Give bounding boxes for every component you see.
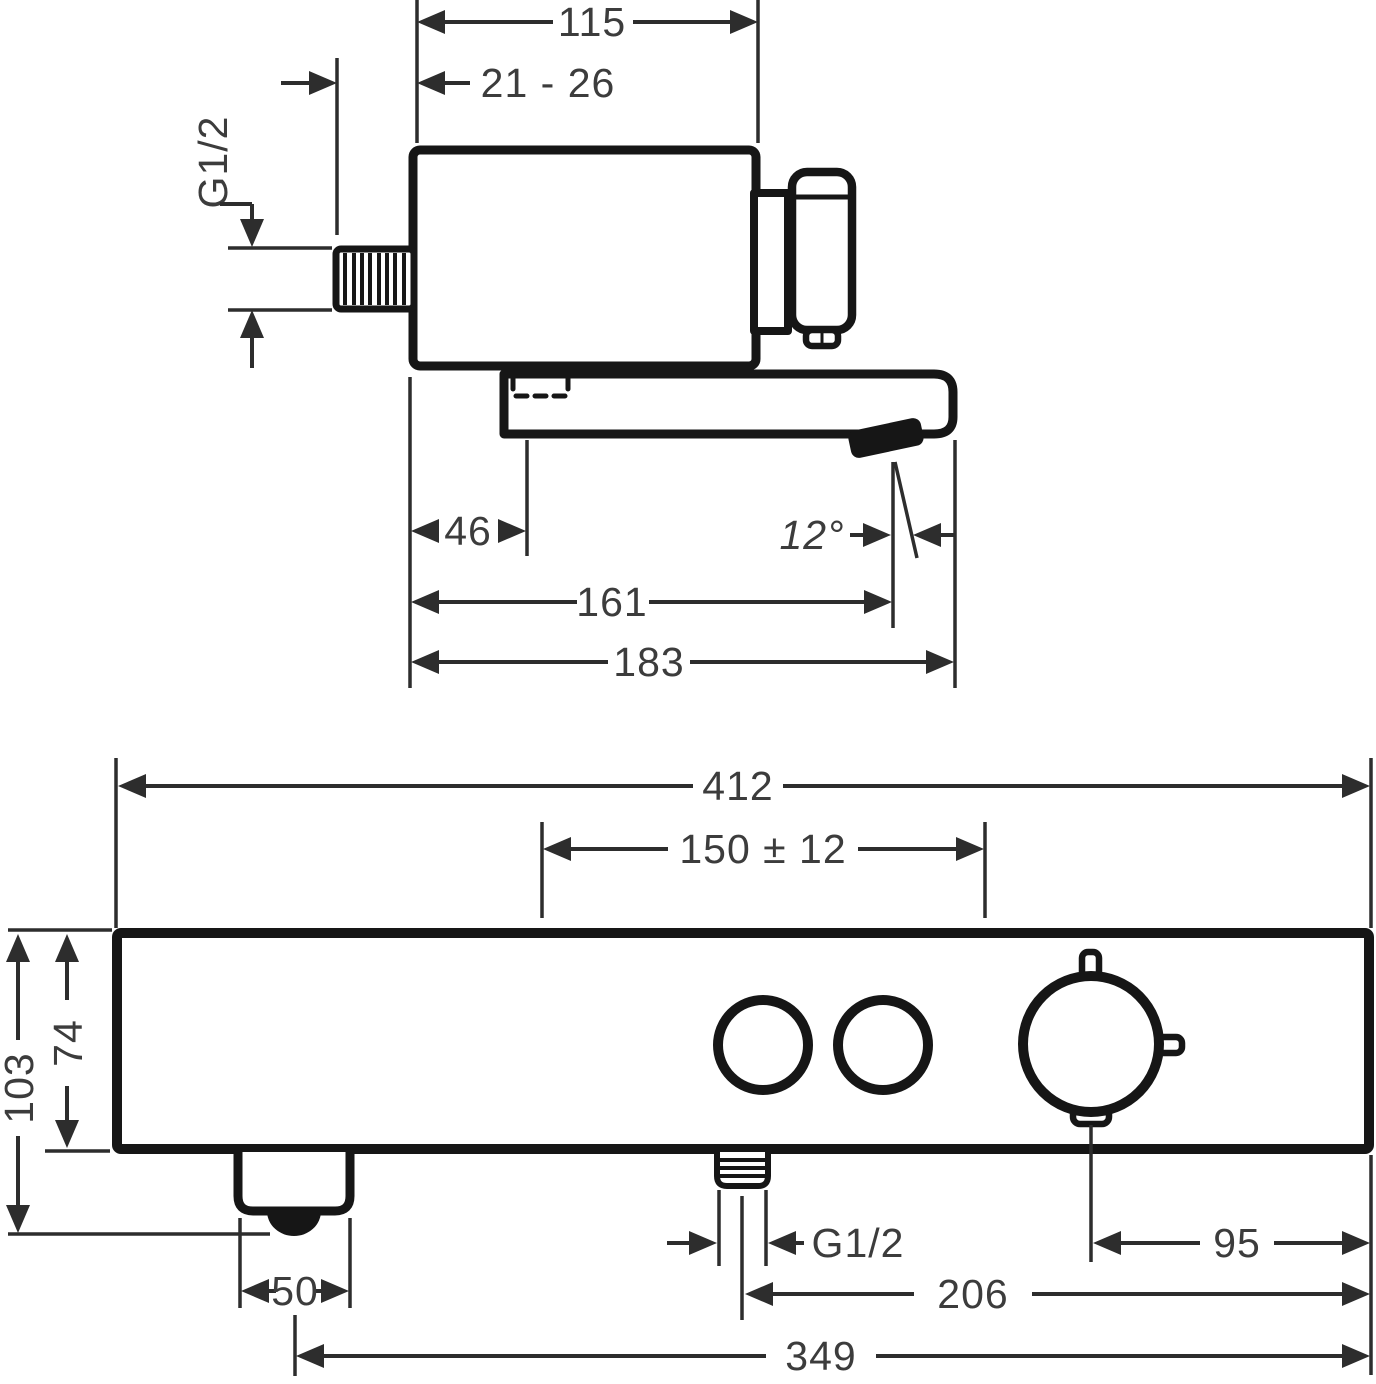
front-view-faucet-outline [117, 933, 1369, 1236]
dim-knob-to-edge-label: 95 [1213, 1220, 1261, 1266]
side-handle-collar [754, 193, 788, 331]
dim-height-body-label: 74 [45, 1019, 91, 1067]
front-select-button-1 [718, 1000, 808, 1090]
dim-height-body: 74 [45, 934, 110, 1151]
technical-drawing-canvas: 115 21 - 26 G1/2 46 [0, 0, 1376, 1384]
dim-total-width-label: 412 [702, 763, 773, 809]
dim-reach-total-label: 183 [613, 639, 684, 685]
front-spout-outline [238, 1152, 350, 1211]
dim-spray-angle-label: 12° [779, 512, 844, 558]
dim-connection-centers: 150 ± 12 [542, 822, 985, 918]
dim-inlet-to-edge-label: 206 [937, 1271, 1008, 1317]
dim-body-width-label: 115 [558, 0, 626, 45]
dim-spout-width-label: 50 [271, 1268, 319, 1314]
front-view: 412 150 ± 12 [0, 758, 1371, 1379]
dim-thread-front-label: G1/2 [812, 1220, 905, 1266]
side-view: 115 21 - 26 G1/2 46 [190, 0, 955, 688]
dim-thread-side: G1/2 [190, 116, 332, 368]
front-spout-dome [267, 1211, 321, 1236]
dim-mount-depth-label: 21 - 26 [481, 60, 616, 106]
side-thread-label: G1/2 [190, 116, 236, 209]
dim-connection-centers-label: 150 ± 12 [679, 826, 846, 872]
dim-spout-to-edge-label: 349 [785, 1333, 856, 1379]
front-select-button-2 [838, 1000, 928, 1090]
dim-thread-front: G1/2 [667, 1190, 904, 1266]
side-view-faucet-outline [336, 150, 953, 459]
technical-drawing-page: 115 21 - 26 G1/2 46 [0, 0, 1376, 1384]
front-knob-outline [1023, 976, 1159, 1112]
side-body-outline [413, 150, 756, 366]
dim-spout-to-edge: 349 [295, 1155, 1371, 1379]
dim-reach-to-spray-label: 161 [576, 579, 647, 625]
dim-reach-total: 183 [411, 440, 955, 688]
dim-reach-to-spray: 161 [411, 579, 892, 625]
dim-spout-offset-label: 46 [444, 508, 492, 554]
dim-height-total-label: 103 [0, 1052, 42, 1123]
